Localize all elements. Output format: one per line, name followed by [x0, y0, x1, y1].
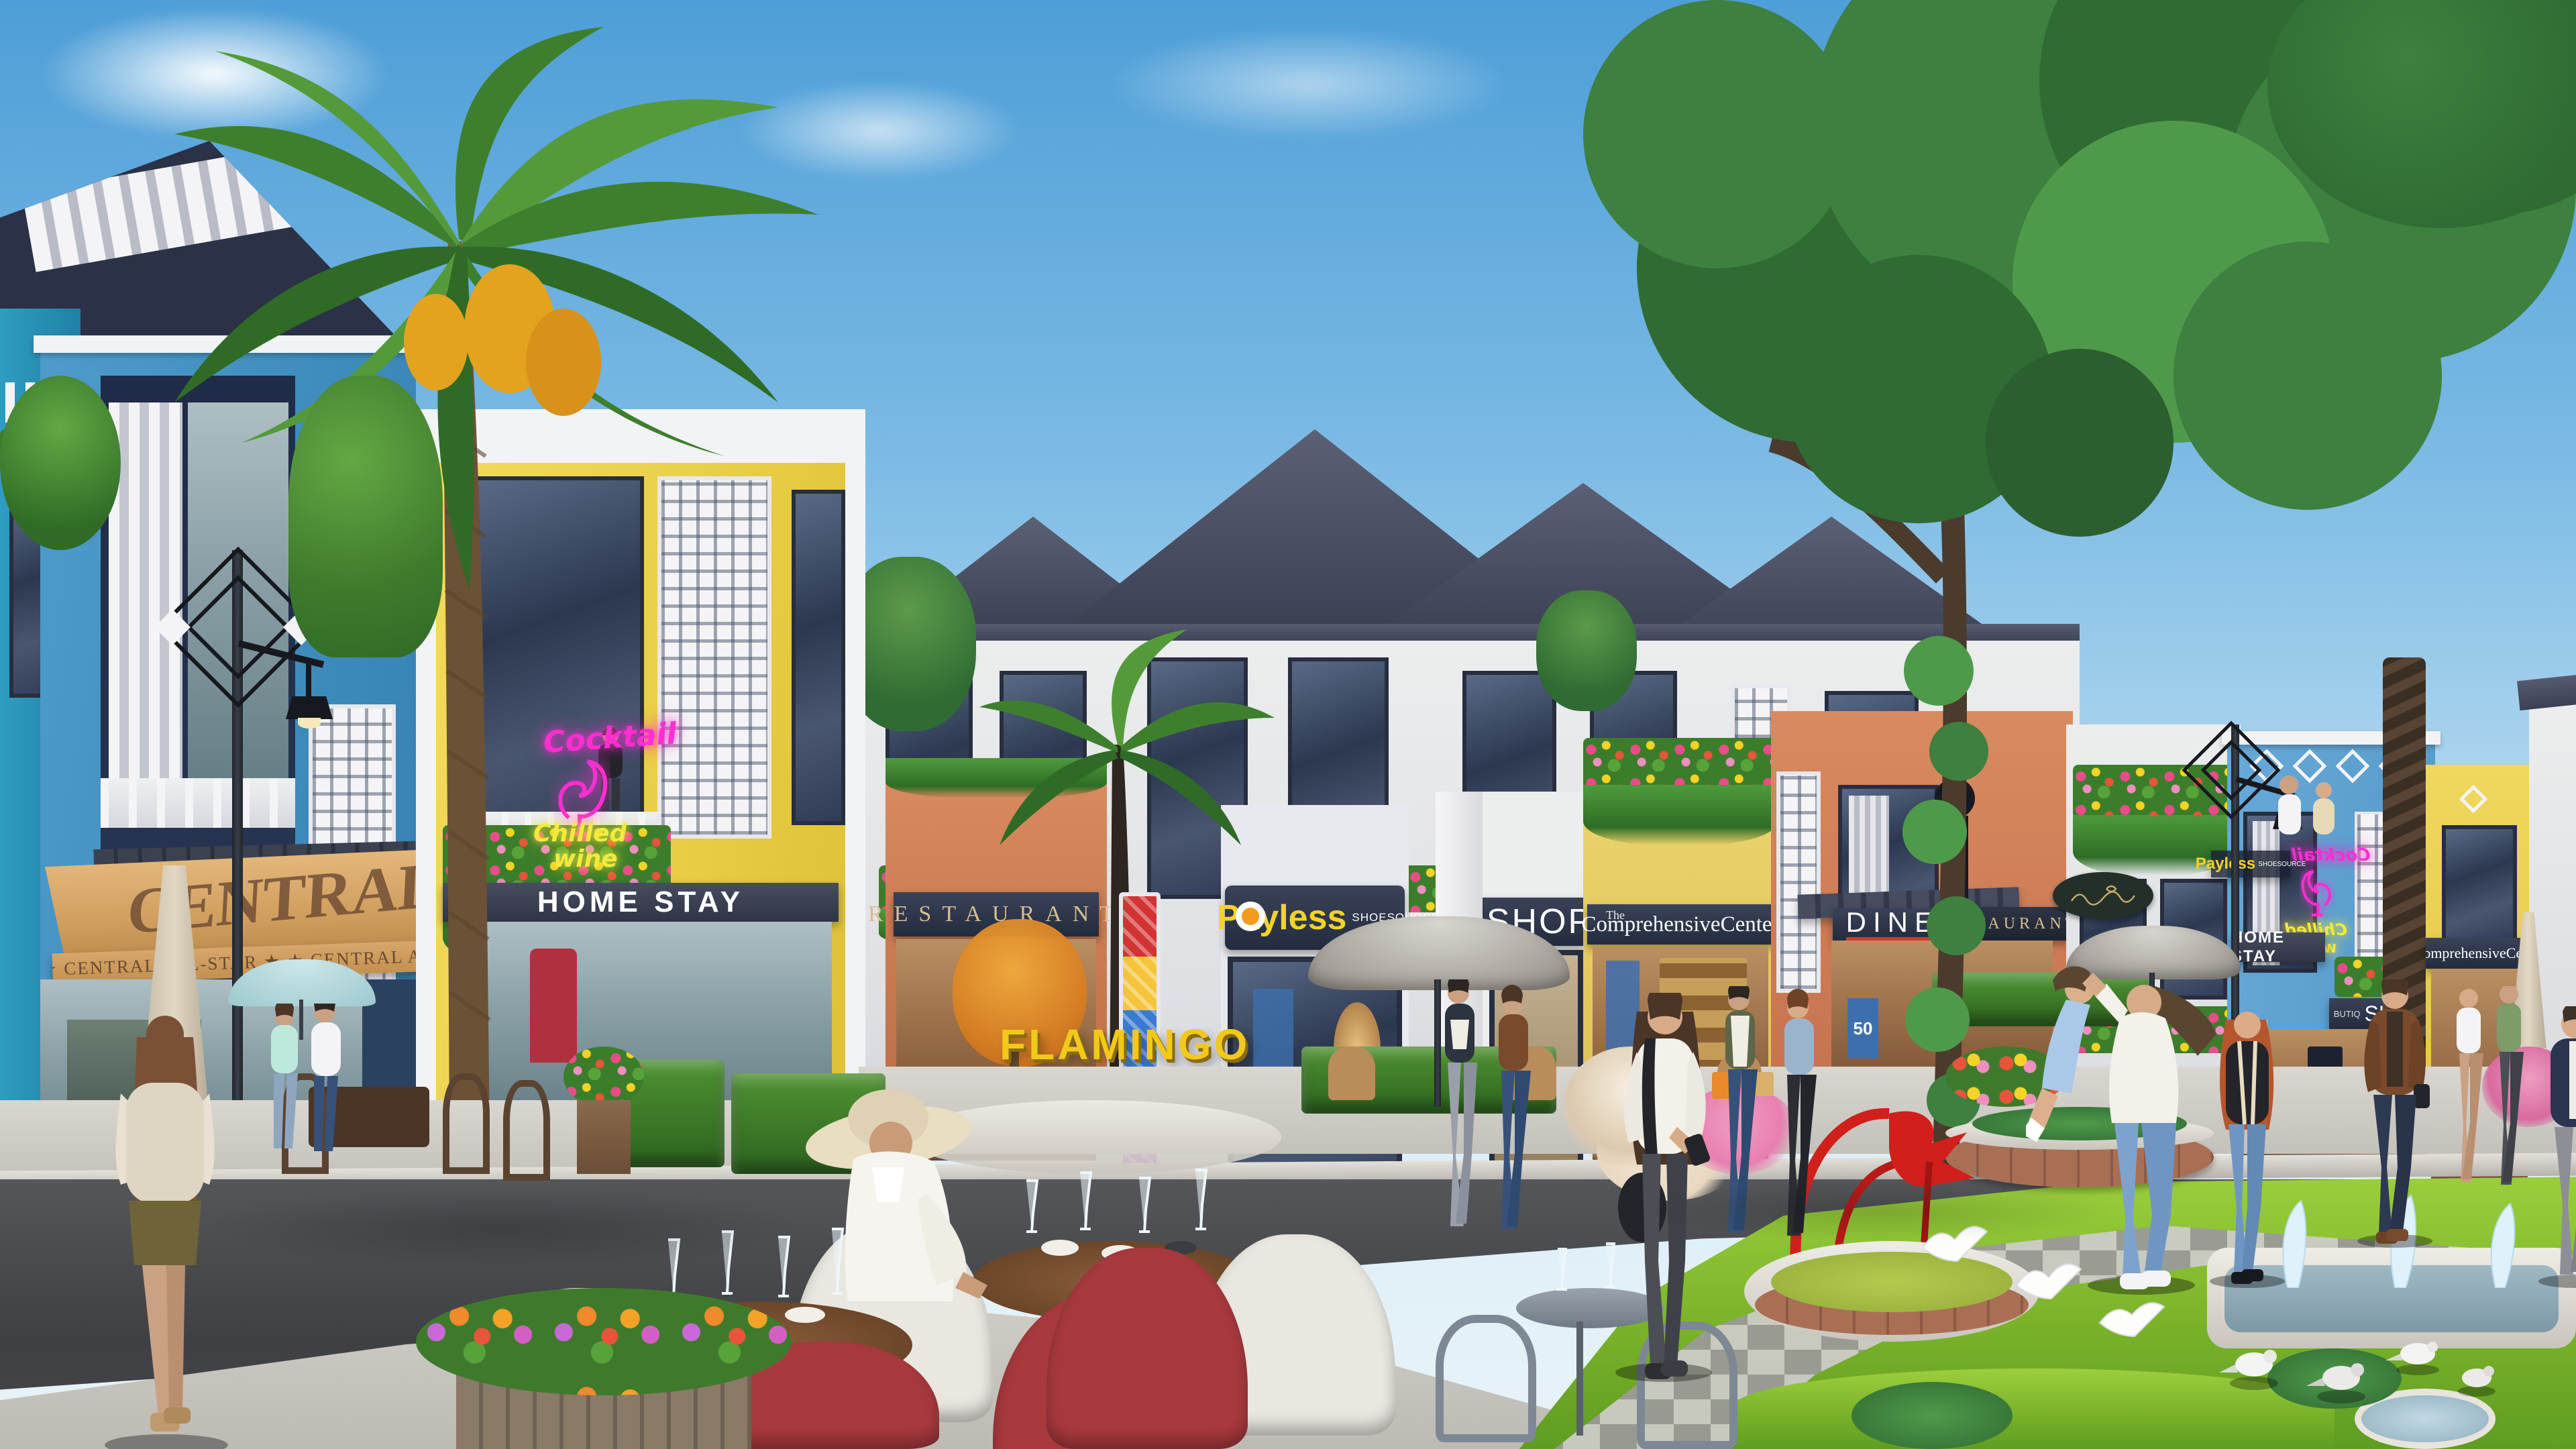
fan-palm-bush: [288, 376, 443, 657]
background-couple: [2442, 986, 2536, 1187]
couple-with-umbrella: [215, 959, 389, 1161]
bentwood-chair: [503, 1080, 550, 1181]
balcony-pair: [2267, 771, 2348, 845]
round-shrub: [1851, 1382, 2012, 1449]
table-leg: [1576, 1322, 1583, 1436]
metal-chair: [1436, 1315, 1536, 1442]
palm-shadow: [201, 1187, 805, 1268]
palm-bush: [0, 376, 121, 550]
person-redhead-woman: [2180, 1006, 2314, 1288]
monument-line1: FLAMINGO: [1000, 1020, 1250, 1069]
wood-planter: [577, 1100, 631, 1174]
bentwood-chair: [443, 1073, 490, 1174]
tree-shadow: [1644, 1181, 2113, 1241]
rattan-chair: [1328, 1046, 1375, 1100]
terrace-planter: [416, 1328, 792, 1449]
planter-flowers: [416, 1288, 792, 1395]
couple-figures: [241, 1004, 362, 1158]
street-render-scene: RESTAURANT Payless SHOESOURCE BUTIQ SHOP…: [0, 0, 2576, 1449]
cloud: [1107, 27, 1509, 141]
pedestrians-shop: [1429, 979, 1543, 1234]
planter-flowers: [563, 1046, 644, 1107]
pigeons-ground: [2214, 1295, 2495, 1415]
